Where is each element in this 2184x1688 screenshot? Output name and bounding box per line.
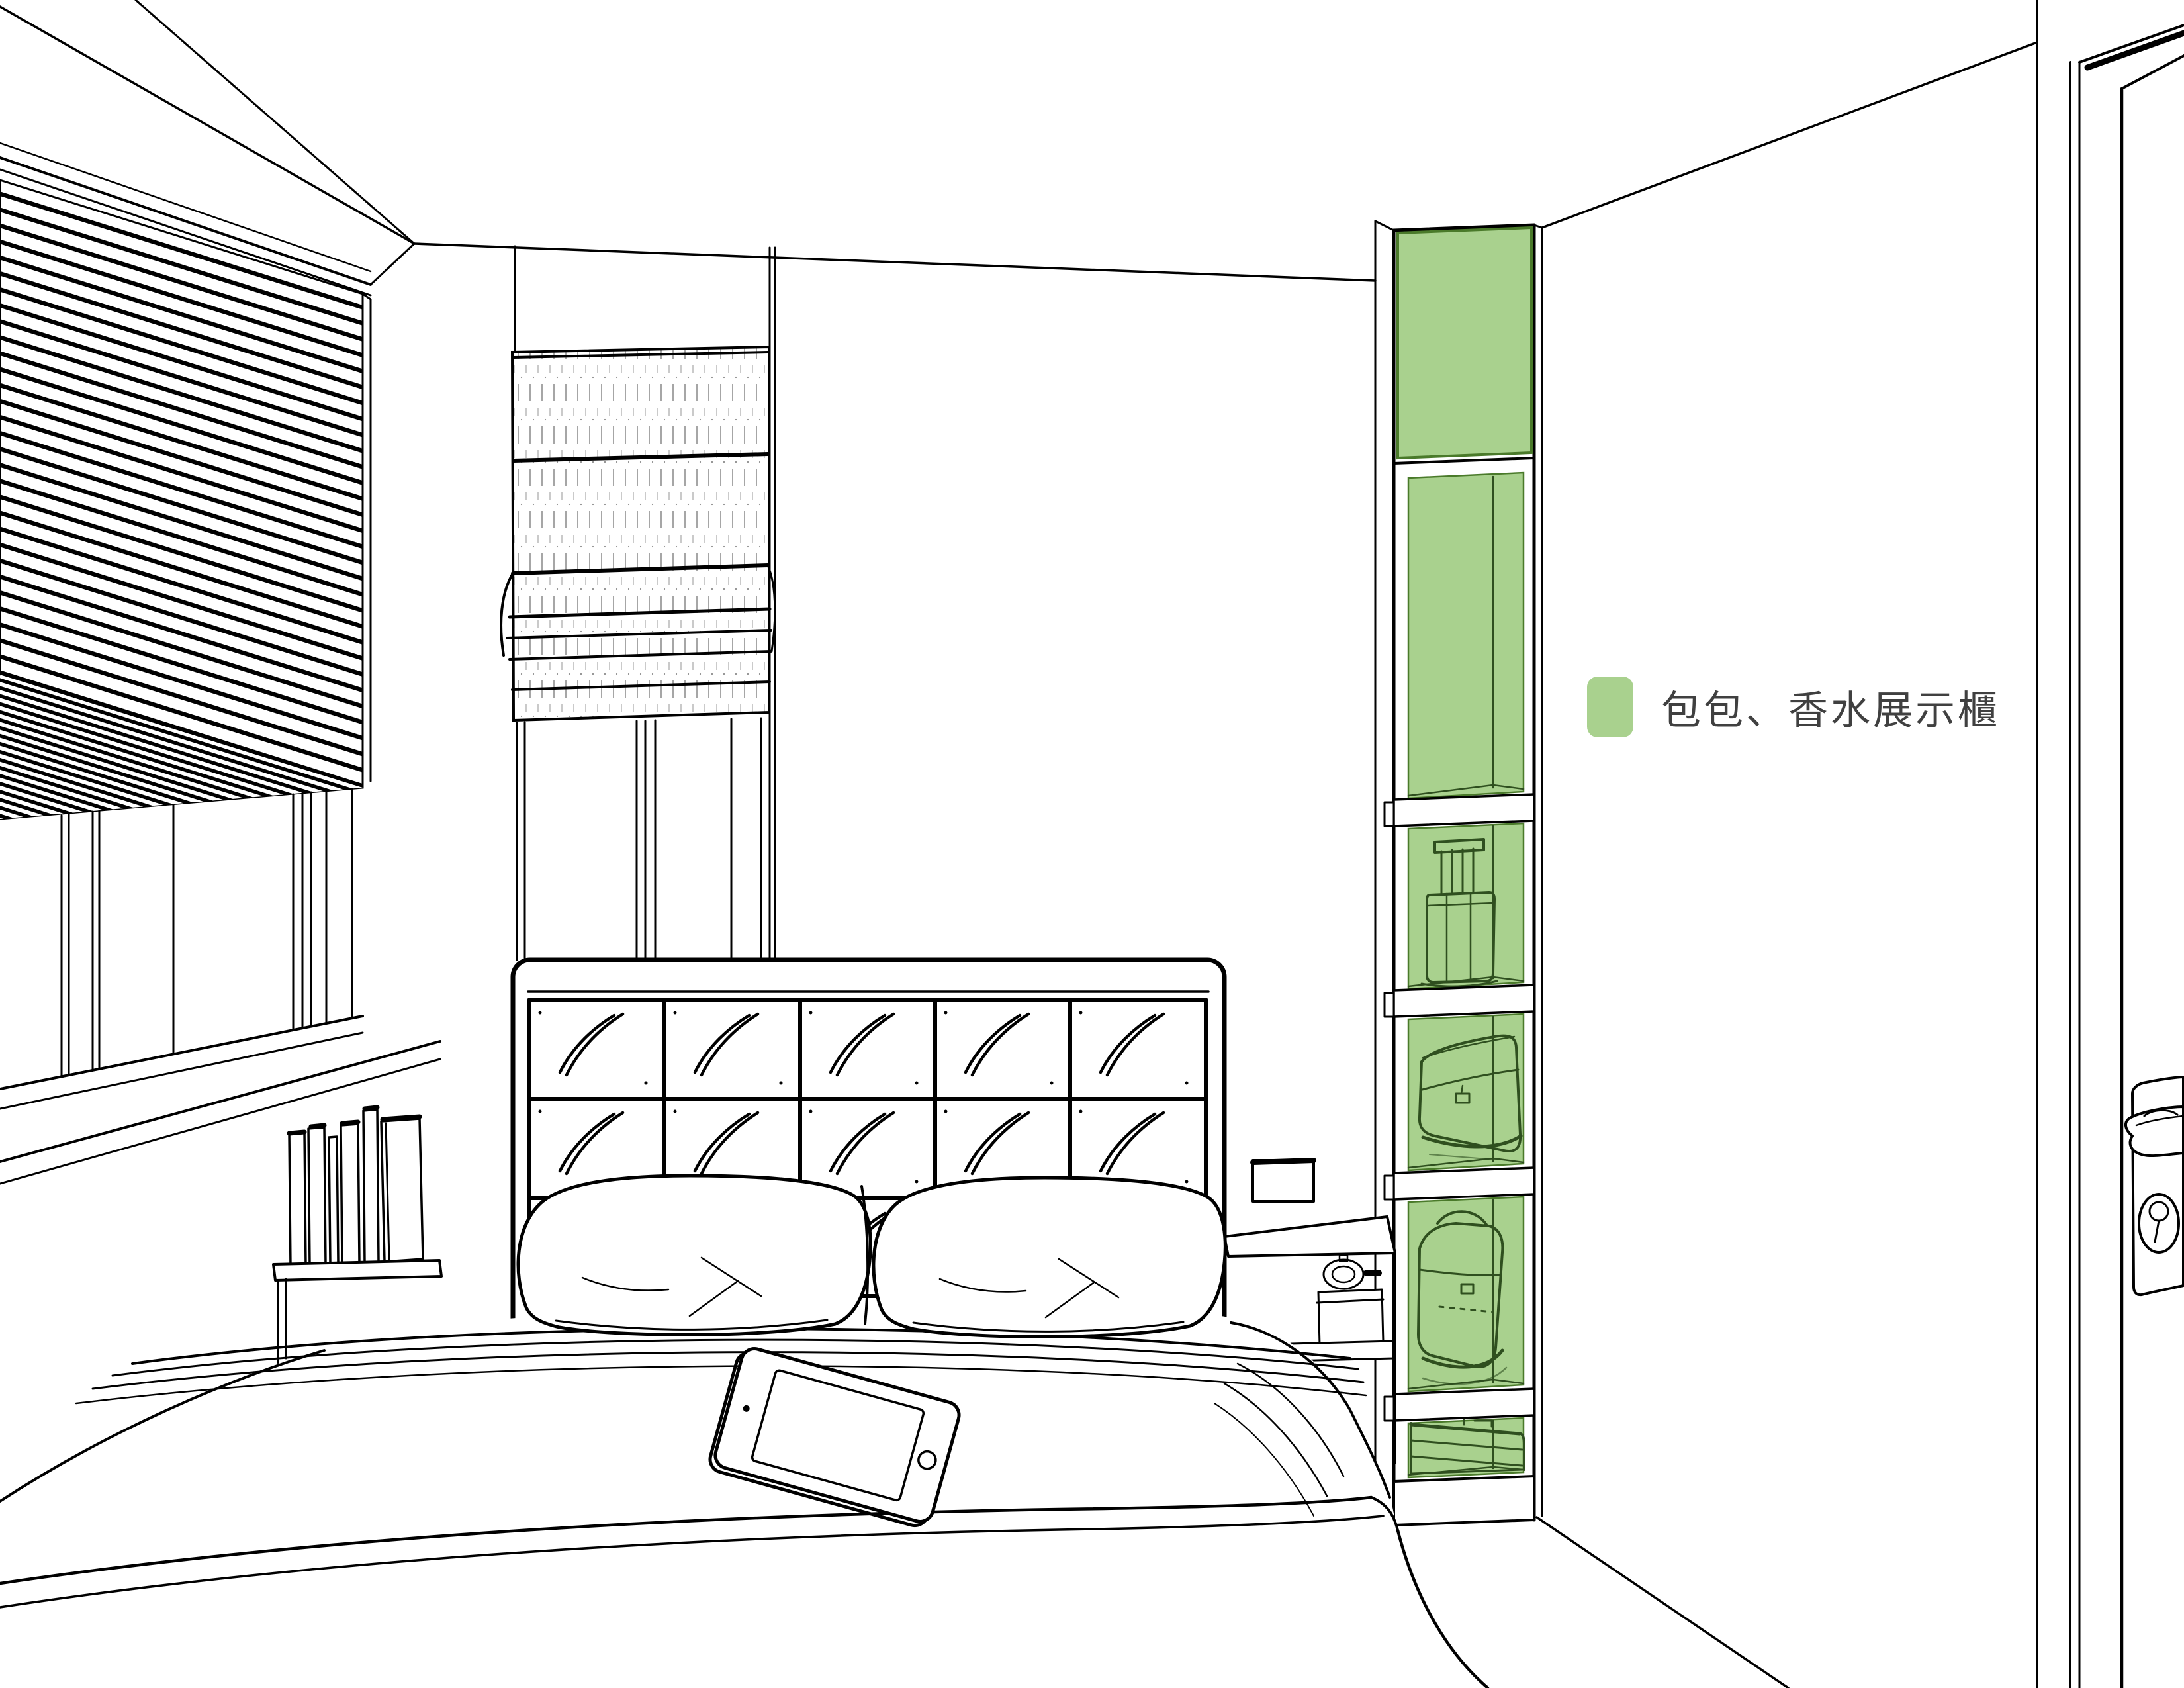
pillow-left — [518, 1176, 870, 1335]
shelf-band-3 — [1394, 1168, 1534, 1199]
shelf-band-1 — [1394, 794, 1534, 826]
display-cabinet — [1363, 221, 1542, 1525]
roman-shade[interactable] — [512, 347, 769, 720]
book-shelf — [273, 1260, 441, 1280]
legend-color-swatch — [1587, 677, 1633, 737]
door[interactable] — [2070, 25, 2184, 1688]
wall-switch-panel[interactable] — [1253, 1160, 1314, 1201]
legend: 包包、香水展示櫃 — [1587, 677, 2000, 737]
roman-shade-window — [501, 246, 775, 961]
cabinet-side-handle — [1363, 1270, 1382, 1276]
clock-and-box — [1317, 1255, 1383, 1345]
legend-label: 包包、香水展示櫃 — [1661, 688, 2000, 733]
shelf-band-2 — [1394, 985, 1534, 1017]
ceiling-edge-left-2 — [136, 0, 414, 244]
cabinet-side-top-edge — [1375, 221, 1394, 230]
door-handle[interactable] — [2126, 1077, 2183, 1295]
pelmet-return — [371, 244, 414, 285]
cabinet-door-bottom — [1394, 458, 1534, 463]
door-leaf-top — [2122, 56, 2184, 89]
pillow-right — [874, 1178, 1225, 1336]
door-frame-top — [2079, 25, 2184, 62]
window-frame-mullions — [62, 789, 352, 1076]
books-on-shelf — [273, 1107, 441, 1362]
window-jamb-right — [363, 294, 371, 781]
cabinet-plinth — [1394, 1476, 1534, 1525]
cabinet-door-highlighted[interactable] — [1398, 228, 1531, 458]
pleated-blind-window — [0, 143, 440, 1184]
bedroom-rendering: 包包、香水展示櫃 — [0, 0, 2184, 1688]
floor-wall-edge — [1537, 1517, 1788, 1688]
nightstand-top — [1224, 1217, 1395, 1256]
window-mullions-below-shade — [517, 718, 761, 960]
line-drawing-canvas: 包包、香水展示櫃 — [0, 0, 2184, 1688]
shelf-back-1 — [1408, 473, 1524, 798]
ceiling-line-right-wall — [1542, 42, 2037, 228]
ceiling-line-back-wall — [414, 244, 1375, 281]
shelf-band-4 — [1394, 1389, 1534, 1421]
